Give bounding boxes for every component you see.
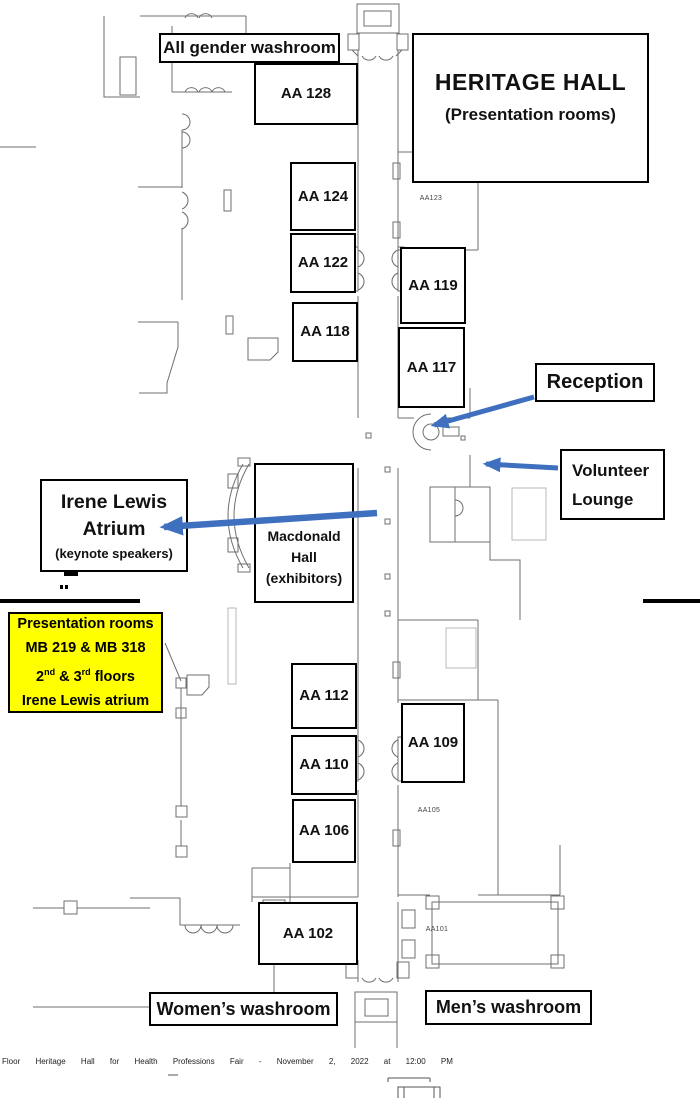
all-gender-washroom-label: All gender washroom xyxy=(159,33,340,63)
volunteer-lounge-label: Volunteer Lounge xyxy=(560,449,665,520)
room-aa106: AA 106 xyxy=(292,799,356,863)
macdonald-hall-label: Macdonald Hall (exhibitors) xyxy=(254,463,354,603)
plan-text-aa105: AA105 xyxy=(399,807,459,814)
room-aa109: AA 109 xyxy=(401,703,465,783)
room-aa102: AA 102 xyxy=(258,902,358,965)
top-entrance xyxy=(348,4,408,62)
reception-desk xyxy=(413,414,459,450)
plan-text-aa101: AA101 xyxy=(407,926,467,933)
corridor-doors-upper xyxy=(352,247,404,291)
room-aa110: AA 110 xyxy=(291,735,357,795)
curved-wall xyxy=(228,458,250,572)
room-aa128: AA 128 xyxy=(254,63,358,125)
reception-label: Reception xyxy=(535,363,655,402)
presentation-rooms-note: Presentation rooms MB 219 & MB 318 2nd &… xyxy=(8,612,163,713)
room-aa122: AA 122 xyxy=(290,233,356,293)
plan-text-aa123: AA123 xyxy=(401,195,461,202)
section-break-line-left xyxy=(0,599,140,603)
right-mid-rooms xyxy=(430,487,546,620)
room-aa118: AA 118 xyxy=(292,302,358,362)
room-aa112: AA 112 xyxy=(291,663,357,729)
footer-caption: Floor Heritage Hall for Health Professio… xyxy=(2,1057,453,1066)
mens-washroom-label: Men’s washroom xyxy=(425,990,592,1025)
floor-plan-page: All gender washroom HERITAGE HALL (Prese… xyxy=(0,0,700,1098)
page-subtitle: (Presentation rooms) xyxy=(445,105,616,125)
bottom-entrance xyxy=(346,962,409,1048)
room-aa119: AA 119 xyxy=(400,247,466,324)
section-break-line-right xyxy=(643,599,700,603)
bottom-cut-shape xyxy=(168,1075,440,1098)
room-aa124: AA 124 xyxy=(290,162,356,231)
plan-topleft-lower-arcs xyxy=(182,114,190,148)
plan-leftwall xyxy=(0,130,182,393)
plan-table-1 xyxy=(248,338,278,360)
irene-lewis-atrium-label: Irene Lewis Atrium (keynote speakers) xyxy=(40,479,188,572)
plan-leftwall-doors xyxy=(182,192,188,229)
womens-washroom-label: Women’s washroom xyxy=(149,992,338,1026)
bottom-left-walls xyxy=(33,898,285,1007)
yellow-note-leader xyxy=(165,643,181,846)
room-aa117: AA 117 xyxy=(398,327,465,408)
plan-table-2 xyxy=(187,675,209,695)
corridor-doors-lower xyxy=(352,737,404,781)
plan-topleft-closet xyxy=(120,57,136,95)
page-title: HERITAGE HALL xyxy=(435,69,626,95)
heritage-hall-title-box: HERITAGE HALL (Presentation rooms) xyxy=(412,33,649,183)
